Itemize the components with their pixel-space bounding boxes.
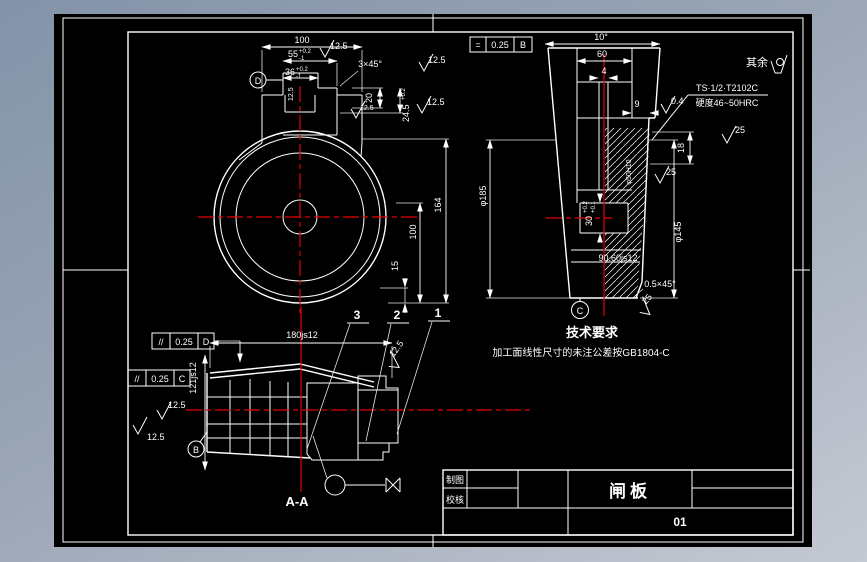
dim-9: 9 [634,99,639,109]
drawing-canvas[interactable] [54,14,812,547]
item-3: 3 [354,308,361,322]
dim-100-top: 100 [294,35,309,45]
dim-18: 18 [676,143,686,153]
dim-angle-10: 10° [594,32,608,42]
cad-application-window: 100 55 +0.2 -1 36 +0.2 -1 3×45° 12.5 12.… [0,0,867,562]
material-note-line1: TS·1/2·T2102C [696,83,759,93]
title-block-check-label: 校核 [446,494,464,505]
item-2: 2 [394,308,401,322]
dim-90-60: 90.60js12 [598,253,637,263]
dim-15: 15 [390,261,400,271]
finish-0-4: 0.4 [671,96,684,106]
fcf-tolerance: 0.25 [151,374,169,384]
section-label: A-A [285,494,309,509]
dim-121js12: 121js12 [188,362,198,394]
dim-d185: φ185 [478,186,488,207]
chamfer-0-5: 0.5×45° [644,279,676,289]
datum-c-label: C [577,306,584,316]
dim-24-5: 24.5 [401,104,411,122]
dim-20: 20 [364,93,374,103]
hardness-note-line2: 硬度46~50HRC [696,97,759,108]
drawing-number: 01 [673,515,687,529]
fcf-symbol: = [475,40,480,50]
datum-d-label: D [255,76,262,86]
finish-25-a: 25 [735,125,745,135]
dim-55: 55 [288,49,298,59]
part-name: 闸板 [609,481,651,501]
finish-12-5-b: 12.5 [428,55,446,65]
dim-36-tol-dn: -1 [296,74,302,80]
item-1: 1 [435,306,442,320]
fcf-tolerance: 0.25 [491,40,509,50]
finish-12-5-c-group: 12.5 [288,87,295,101]
rest-label: 其余 [746,55,768,69]
tech-req-line1: 加工面线性尺寸的未注公差按GB1804-C [492,346,669,359]
finish-12-5-e: 12.5 [427,97,445,107]
datum-b-label: B [193,445,199,455]
dim-d50: φ50H10 [626,159,633,184]
title-block-draw-label: 制图 [446,474,464,485]
fcf-datum: C [179,374,186,384]
dim-24-5-tol: +0.2 [401,87,407,100]
dim-36-tol-up: +0.2 [296,67,309,73]
dim-180js12: 180js12 [286,330,318,340]
chamfer-note: 3×45° [358,59,382,69]
hatch-region [605,233,642,298]
cad-viewport[interactable]: 100 55 +0.2 -1 36 +0.2 -1 3×45° 12.5 12.… [0,0,867,562]
fcf-symbol: // [158,337,164,347]
dim-30-tol-up: +0.2 [583,200,589,213]
fcf-symbol: // [134,374,140,384]
fcf-symmetry: = 0.25 B [470,37,532,52]
fcf-tolerance: 0.25 [175,337,193,347]
dim-55-tol-up: +0.2 [299,49,312,55]
dim-100-side: 100 [408,224,418,239]
dim-d145: φ145 [673,222,683,243]
fcf-datum: B [520,40,526,50]
finish-12-5-c: 12.5 [288,87,295,101]
dim-60: 60 [597,49,607,59]
dim-164: 164 [433,197,443,212]
finish-12-5-a: 12.5 [168,400,186,410]
dim-36: 36 [285,67,295,77]
dim-30-tol-dn: +0.1 [591,200,597,213]
tech-req-title: 技术要求 [566,325,619,340]
finish-12-5-d: 12.5 [360,105,374,112]
fcf-datum: D [203,337,210,347]
finish-12-5-a: 12.5 [330,41,348,51]
finish-25-b: 25 [666,167,676,177]
dim-30: 30 [584,216,594,226]
finish-12-5-b: 12.5 [147,432,165,442]
dim-4: 4 [601,66,606,76]
dim-55-tol-dn: -1 [299,56,305,62]
